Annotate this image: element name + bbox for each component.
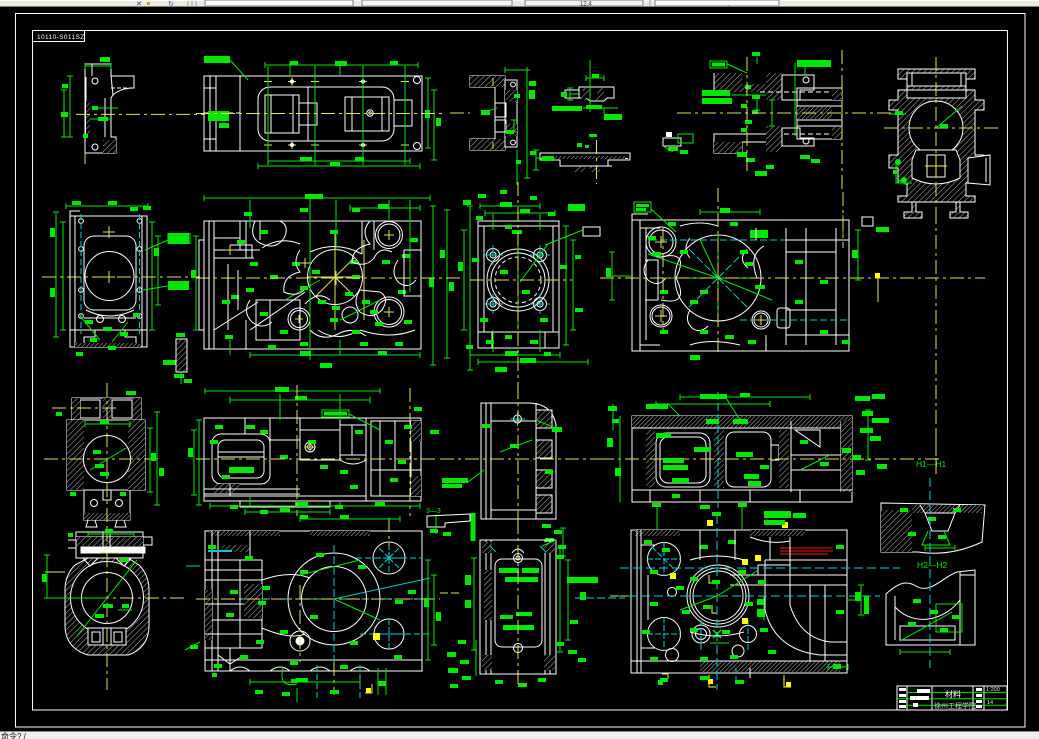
svg-text:命令? /: 命令? / bbox=[1, 731, 27, 739]
svg-text:14: 14 bbox=[987, 700, 993, 706]
svg-text:3—3: 3—3 bbox=[426, 508, 441, 515]
svg-text:H1—H1: H1—H1 bbox=[916, 459, 947, 469]
svg-text:✕: ✕ bbox=[136, 1, 142, 8]
svg-text:材料: 材料 bbox=[945, 689, 961, 699]
svg-text:徐州工程学院: 徐州工程学院 bbox=[934, 701, 976, 710]
svg-text:1:200: 1:200 bbox=[986, 687, 1000, 693]
svg-text:.: . bbox=[728, 1, 730, 8]
svg-text:12.4: 12.4 bbox=[580, 2, 592, 8]
svg-text:H2—H2: H2—H2 bbox=[917, 560, 948, 570]
svg-text:↻: ↻ bbox=[168, 1, 174, 8]
svg-text:10110-S011SZ: 10110-S011SZ bbox=[37, 34, 85, 41]
